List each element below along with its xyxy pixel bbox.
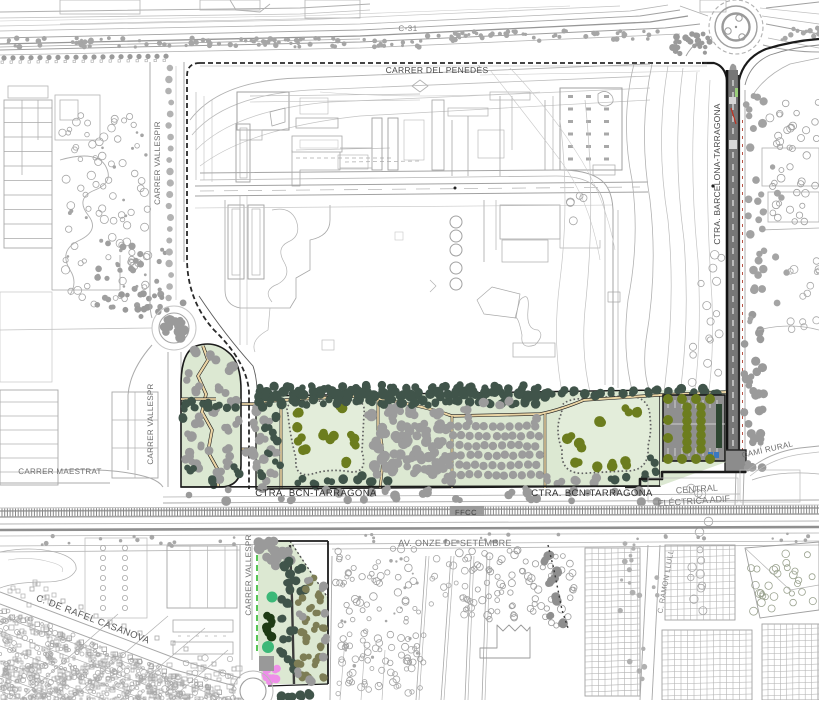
svg-text:CTRA. BARCELONA-TARRAGONA: CTRA. BARCELONA-TARRAGONA (712, 103, 722, 244)
svg-text:CARRER VALLESPIR: CARRER VALLESPIR (153, 121, 162, 205)
svg-text:CARRER MAESTRAT: CARRER MAESTRAT (18, 467, 101, 476)
svg-text:AV. ONZE DE SETEMBRE: AV. ONZE DE SETEMBRE (398, 538, 512, 548)
svg-text:C-31: C-31 (398, 24, 417, 33)
svg-text:CARRER DEL PENEDÈS: CARRER DEL PENEDÈS (386, 65, 489, 75)
svg-text:CARRER VALLESPR: CARRER VALLESPR (146, 383, 155, 464)
svg-text:CTRA. BCN-TARRAGONA: CTRA. BCN-TARRAGONA (255, 488, 377, 499)
svg-text:FFCC: FFCC (455, 508, 477, 517)
svg-text:CTRA. BCN-TARRAGONA: CTRA. BCN-TARRAGONA (531, 488, 653, 499)
svg-text:CARRER VALLESPR: CARRER VALLESPR (244, 534, 253, 615)
